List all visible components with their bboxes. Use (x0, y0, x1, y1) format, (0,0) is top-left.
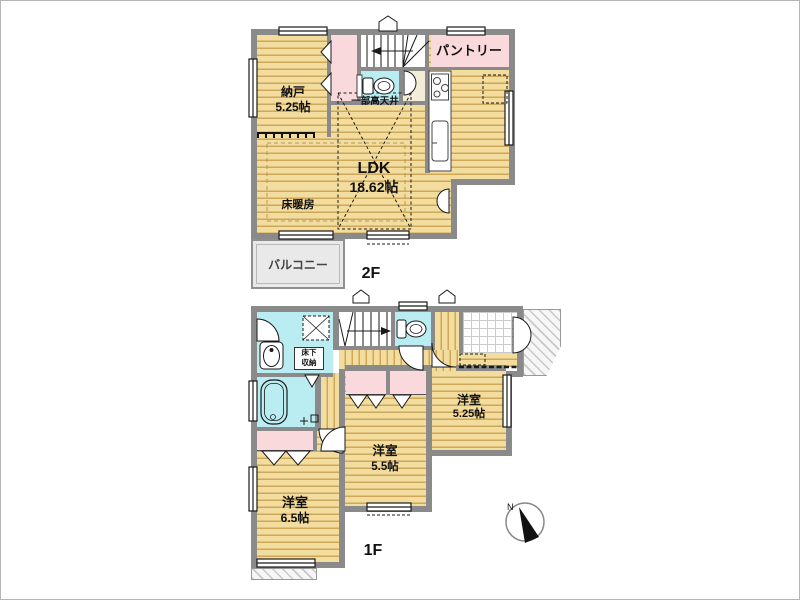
ldk-size: 18.62帖 (331, 179, 417, 197)
wall-2f-left (251, 29, 257, 239)
room-b-name: 洋室 (343, 444, 427, 460)
room-c-name: 洋室 (255, 495, 335, 511)
label-ldk: LDK 18.62帖 (331, 159, 417, 197)
nando-name: 納戸 (254, 85, 332, 100)
hall-2f (331, 35, 357, 101)
wall (425, 67, 430, 173)
label-2f: 2F (351, 264, 391, 284)
wall (391, 312, 395, 350)
label-balcony: バルコニー (253, 258, 343, 273)
closet-55-left (346, 371, 386, 395)
stairs-2f-area (361, 35, 429, 67)
wall (257, 373, 333, 377)
label-nando: 納戸 5.25帖 (254, 85, 332, 115)
ldk-name: LDK (331, 159, 417, 179)
underfloor-line1: 床下 (295, 348, 323, 358)
wall-1f-left (251, 306, 257, 568)
wall-2f-bottom (251, 233, 457, 239)
wall (361, 67, 429, 71)
underfloor-line2: 収納 (295, 358, 323, 368)
wall-2f-step (451, 179, 515, 185)
wall (339, 506, 345, 568)
wall (427, 67, 509, 70)
open-railing (257, 132, 315, 138)
vent-mark-1f (353, 290, 369, 303)
label-room-525: 洋室 5.25帖 (431, 393, 507, 422)
room-a-size: 5.25帖 (431, 408, 507, 422)
room-b-size: 5.5帖 (343, 460, 427, 474)
wall-2f-top (251, 29, 515, 35)
closet-55-right (390, 371, 426, 395)
label-1f: 1F (353, 541, 393, 561)
wall (426, 450, 512, 456)
wall (315, 373, 321, 427)
underfloor-storage-box: 床下 収納 (294, 347, 324, 370)
wall-2f-right (509, 29, 515, 185)
genkan-tile (463, 312, 517, 353)
wall (339, 346, 435, 350)
closet-65 (257, 431, 313, 451)
label-room-65: 洋室 6.5帖 (255, 495, 335, 526)
compass-north-label: N (507, 502, 514, 512)
wall-1f-top (251, 306, 523, 312)
wall (313, 431, 317, 451)
room-a-name: 洋室 (431, 393, 507, 408)
toilet-1f-room (395, 312, 431, 346)
wall-2f-right-lower (451, 179, 457, 239)
label-floor-heating: 床暖房 (267, 199, 329, 213)
porch (523, 309, 561, 376)
wall (517, 306, 523, 319)
wall (345, 365, 426, 371)
floor-plan-canvas: N 納戸 5.25帖 パントリー 一部高天井 LDK 18.62帖 床暖房 バル… (0, 0, 800, 600)
wall-1f-bottom (251, 562, 345, 568)
terrace-step (251, 568, 317, 580)
wall (339, 506, 432, 512)
bathroom (257, 377, 315, 427)
wall (257, 427, 321, 431)
wall (333, 312, 339, 350)
label-pantry: パントリー (429, 43, 509, 59)
vent-mark-1f (439, 290, 455, 303)
room-c-size: 6.5帖 (255, 511, 335, 526)
stairs-1f-area (339, 312, 391, 346)
nando-size: 5.25帖 (254, 100, 332, 115)
wall (431, 312, 435, 350)
wall (339, 369, 345, 427)
label-high-ceiling: 一部高天井 (338, 96, 412, 108)
wall (459, 312, 463, 353)
compass-icon: N (506, 502, 544, 543)
wall (456, 365, 506, 371)
label-room-55: 洋室 5.5帖 (343, 444, 427, 474)
